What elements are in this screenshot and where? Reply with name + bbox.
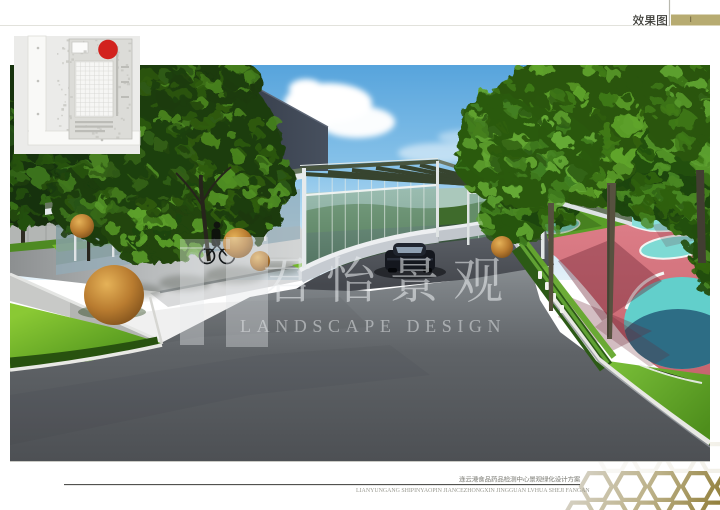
svg-text:LANDSCAPE DESIGN: LANDSCAPE DESIGN [240, 316, 506, 336]
svg-text:LIANYUNGANG SHIPINYAOPIN JIANC: LIANYUNGANG SHIPINYAOPIN JIANCEZHONGXIN … [356, 488, 590, 494]
